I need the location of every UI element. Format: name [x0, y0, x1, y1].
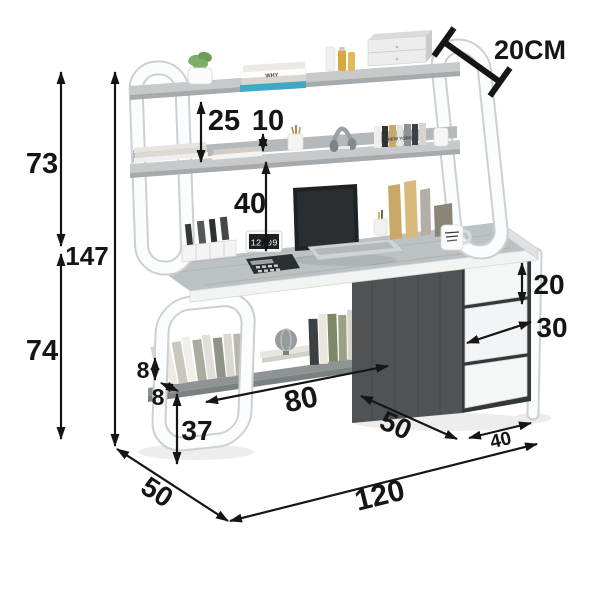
dim-label-80: 80: [281, 380, 320, 419]
drawer-middle: [465, 300, 527, 362]
dim-label-30: 30: [536, 312, 567, 343]
storage-bottles: [326, 47, 355, 71]
dim-label-120: 120: [351, 474, 408, 518]
dim-desk-length: 120: [230, 444, 537, 521]
dim-top-shelf-depth: 20CM: [434, 28, 566, 96]
clock-display: 12:09: [250, 239, 277, 249]
dim-label-20cm: 20CM: [494, 35, 566, 65]
dim-label-8a: 8: [137, 357, 150, 383]
book-stack: WHY: [240, 62, 306, 93]
dim-label-8b: 8: [152, 384, 165, 410]
digital-clock: 12:09: [246, 231, 282, 252]
dim-total-height: 147: [65, 72, 115, 446]
dim-label-74: 74: [26, 335, 58, 367]
potted-plant: [187, 50, 213, 84]
dim-label-40-bottom: 40: [488, 428, 513, 453]
furniture-illustration: WHY: [130, 30, 551, 460]
small-vase: [434, 128, 448, 146]
dim-book-stop-height: 8: [137, 357, 155, 383]
desk-diagram-canvas: WHY: [0, 0, 600, 600]
book-spine-text: WHY: [265, 73, 279, 80]
dim-label-50-left: 50: [136, 471, 179, 514]
dim-desk-side-depth: 50: [117, 449, 228, 521]
dim-label-25: 25: [208, 105, 240, 137]
pencil-cup: [288, 125, 303, 150]
dim-label-10: 10: [252, 105, 284, 137]
dim-label-40-hutch: 40: [234, 188, 266, 220]
dim-label-147: 147: [65, 241, 108, 271]
dim-desk-height: 74: [26, 254, 61, 439]
dim-hutch-height: 73: [26, 72, 61, 246]
dim-label-37: 37: [181, 415, 212, 446]
pen-cup: [374, 210, 387, 235]
dim-label-20: 20: [533, 269, 564, 300]
product-dimension-diagram: WHY: [0, 0, 600, 600]
mini-drawer-organizer: [368, 30, 432, 66]
dim-label-73: 73: [26, 148, 58, 180]
